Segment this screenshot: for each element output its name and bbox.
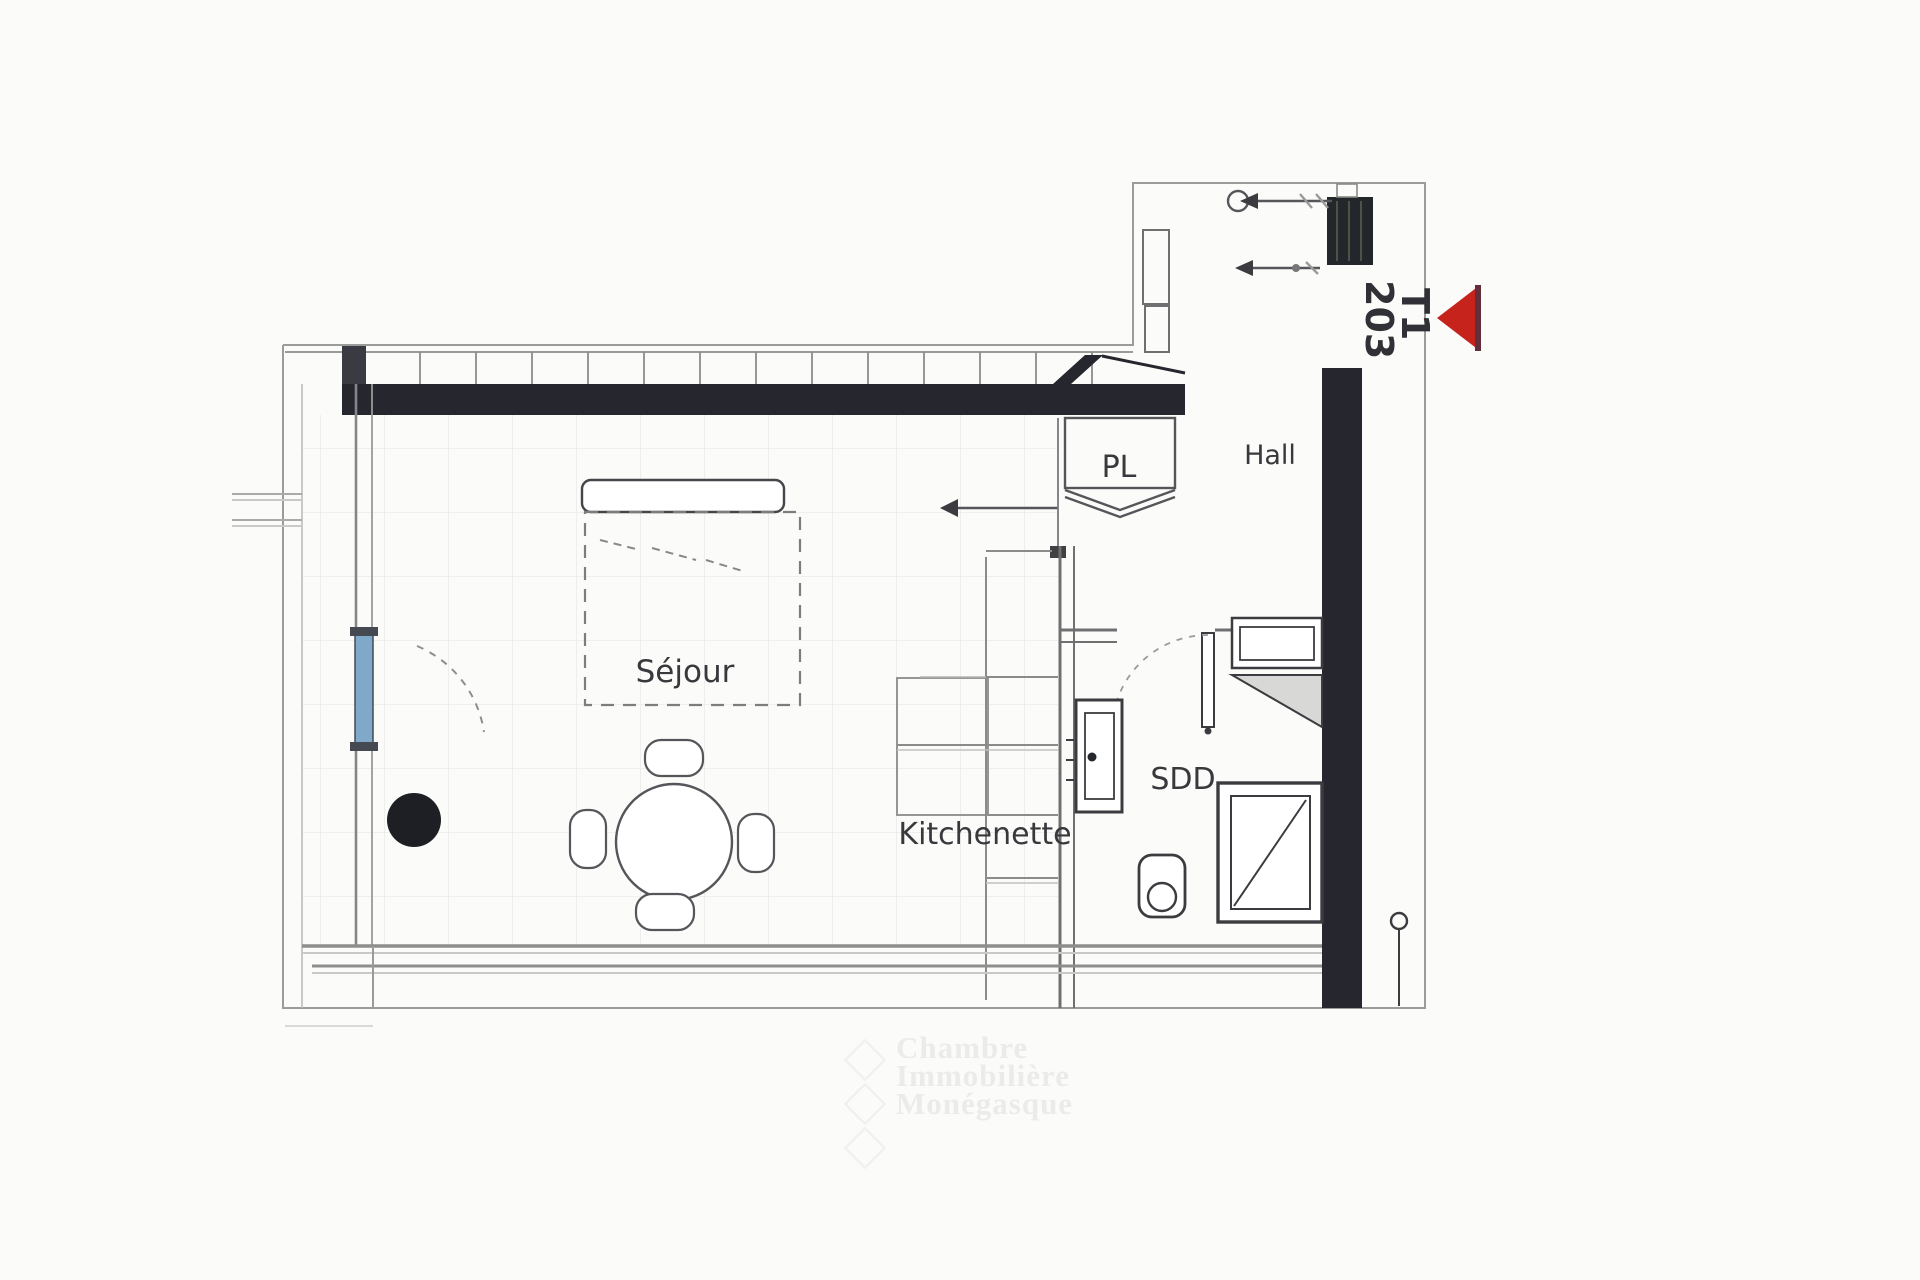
column <box>387 793 441 847</box>
window-cap <box>350 627 378 636</box>
diamond-shape <box>844 1083 886 1125</box>
chair <box>636 894 694 930</box>
diamond-shape <box>844 1127 886 1169</box>
door-hinge <box>1205 728 1212 735</box>
room-label-kitchenette: Kitchenette <box>898 817 1071 852</box>
watermark-line: Monégasque <box>896 1090 1073 1118</box>
chair <box>738 814 774 872</box>
sdd-door-leaf <box>1202 633 1214 727</box>
room-label-hall: Hall <box>1244 440 1296 471</box>
watermark-logo-diamonds-icon <box>850 1038 880 1170</box>
sink-icon <box>1076 700 1122 812</box>
wall-right-vertical <box>1322 368 1362 1008</box>
round-table <box>616 784 732 900</box>
entrance-marker-edge <box>1475 285 1481 351</box>
wall-tick <box>1050 546 1066 558</box>
window-cap <box>350 742 378 751</box>
room-label-closet: PL <box>1102 450 1137 485</box>
unit-type-label: T1 <box>1393 288 1437 340</box>
watermark: Chambre Immobilière Monégasque <box>850 1034 1073 1170</box>
chair <box>645 740 703 776</box>
scan-mark <box>1292 264 1300 272</box>
room-label-sejour: Séjour <box>636 654 735 690</box>
room-label-sdd: SDD <box>1150 762 1215 797</box>
sink-drain <box>1088 753 1097 762</box>
wall-top-horizontal <box>342 384 1185 415</box>
window-glass <box>355 635 373 743</box>
watermark-text: Chambre Immobilière Monégasque <box>896 1034 1073 1118</box>
chair <box>570 810 606 868</box>
wall-end-cap <box>342 346 366 384</box>
sofa-headboard <box>582 480 784 512</box>
diamond-shape <box>844 1039 886 1081</box>
scanned-floor-plan-page: Séjour Kitchenette Hall SDD PL 203 T1 Ch… <box>0 0 1920 1280</box>
toilet-icon <box>1139 855 1185 917</box>
